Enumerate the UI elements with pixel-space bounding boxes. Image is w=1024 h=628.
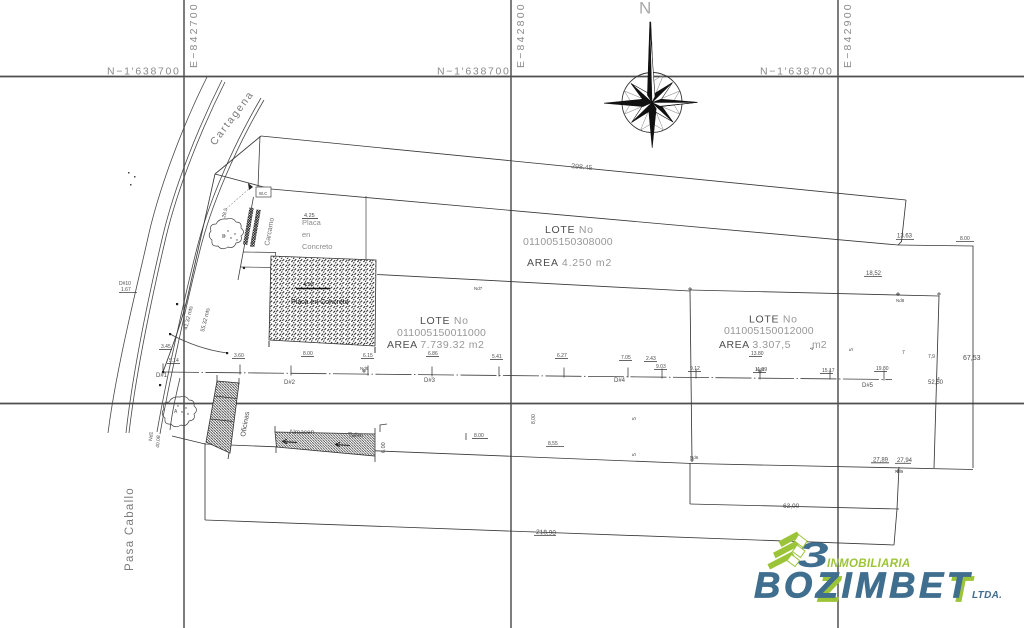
svg-text:4: 4 xyxy=(810,347,816,350)
svg-text:Placa en Concreto: Placa en Concreto xyxy=(291,299,349,306)
svg-text:E−842700: E−842700 xyxy=(188,2,200,68)
svg-text:AREA 7.739.32 m2: AREA 7.739.32 m2 xyxy=(387,339,484,351)
svg-text:5: 5 xyxy=(632,417,638,420)
svg-text:Concreto: Concreto xyxy=(302,242,332,251)
svg-text:N: N xyxy=(639,0,651,18)
svg-text:13.63: 13.63 xyxy=(897,234,913,240)
svg-text:D#5: D#5 xyxy=(862,383,874,389)
svg-text:63,00: 63,00 xyxy=(783,503,800,510)
svg-text:4.50: 4.50 xyxy=(303,282,314,288)
svg-text:D#2: D#2 xyxy=(284,380,296,386)
svg-text:7: 7 xyxy=(902,350,905,356)
svg-text:BOZIMBET: BOZIMBET xyxy=(754,565,973,606)
svg-text:011005150012000: 011005150012000 xyxy=(724,325,814,337)
svg-text:Pasa Caballo: Pasa Caballo xyxy=(124,487,136,571)
svg-text:AREA 4.250 m2: AREA 4.250 m2 xyxy=(527,257,612,269)
svg-text:AREA 3.307,5: AREA 3.307,5 xyxy=(719,339,791,351)
svg-text:w.c: w.c xyxy=(258,191,267,197)
svg-text:E−842800: E−842800 xyxy=(515,2,527,68)
svg-text:8,00: 8,00 xyxy=(531,414,537,424)
svg-text:LOTE No: LOTE No xyxy=(749,314,798,326)
svg-text:N−1'638700: N−1'638700 xyxy=(107,66,181,78)
svg-text:40.08: 40.08 xyxy=(155,435,162,448)
svg-text:4: 4 xyxy=(937,377,940,383)
svg-text:LOTE No: LOTE No xyxy=(420,315,469,327)
svg-text:en: en xyxy=(302,230,310,239)
svg-text:N−1'638700: N−1'638700 xyxy=(760,66,834,78)
svg-text:Nd8: Nd8 xyxy=(896,298,905,303)
svg-text:Taller: Taller xyxy=(348,432,364,439)
svg-text:LOTE No: LOTE No xyxy=(545,224,594,236)
svg-text:Almacen: Almacen xyxy=(289,429,315,436)
svg-text:D#1: D#1 xyxy=(156,373,168,379)
svg-text:67,53: 67,53 xyxy=(963,355,981,362)
svg-text:D#3: D#3 xyxy=(424,378,436,384)
svg-text:Nd7: Nd7 xyxy=(474,286,483,291)
svg-text:D: D xyxy=(222,234,226,240)
svg-text:5: 5 xyxy=(849,348,855,351)
svg-text:011005150308000: 011005150308000 xyxy=(523,236,613,248)
svg-text:D#4: D#4 xyxy=(614,378,626,384)
svg-text:5: 5 xyxy=(632,453,638,456)
svg-text:LTDA.: LTDA. xyxy=(972,590,1002,601)
svg-text:52,50: 52,50 xyxy=(928,380,944,386)
svg-text:Nd6: Nd6 xyxy=(690,455,699,460)
svg-text:Placa: Placa xyxy=(302,218,322,227)
svg-text:Nd4: Nd4 xyxy=(756,367,765,372)
svg-text:7,9: 7,9 xyxy=(928,354,935,360)
svg-text:1.67: 1.67 xyxy=(121,287,131,293)
svg-text:E−842900: E−842900 xyxy=(842,2,854,68)
svg-text:Nd9: Nd9 xyxy=(895,469,904,474)
svg-text:6.00: 6.00 xyxy=(381,442,387,453)
svg-text:011005150011000: 011005150011000 xyxy=(397,327,486,339)
svg-text:N−1'638700: N−1'638700 xyxy=(437,66,511,78)
svg-text:Nd1: Nd1 xyxy=(148,431,155,441)
svg-text:Nd5: Nd5 xyxy=(360,366,369,371)
